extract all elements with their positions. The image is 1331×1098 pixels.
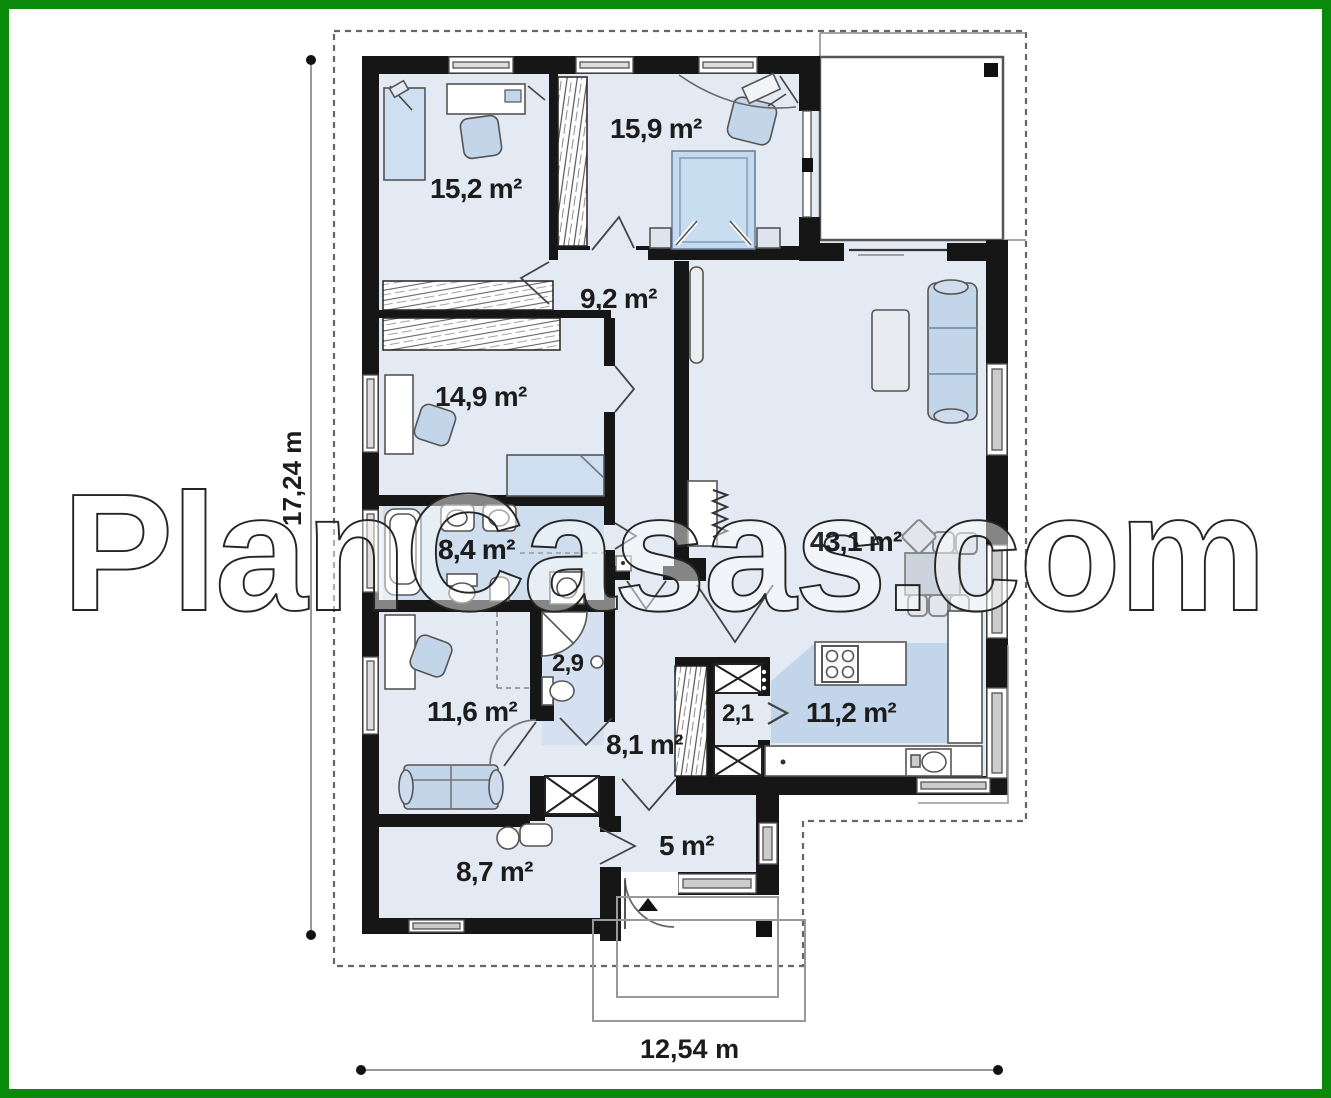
svg-text:8,4 m²: 8,4 m²: [438, 534, 515, 565]
svg-text:11,6 m²: 11,6 m²: [427, 696, 517, 727]
svg-text:2,1: 2,1: [722, 700, 754, 727]
svg-text:9,2 m²: 9,2 m²: [580, 283, 657, 314]
svg-text:14,9 m²: 14,9 m²: [435, 381, 527, 412]
svg-text:15,9 m²: 15,9 m²: [610, 113, 702, 144]
svg-text:15,2 m²: 15,2 m²: [430, 173, 522, 204]
svg-text:8,7 m²: 8,7 m²: [456, 856, 533, 887]
svg-text:2,9: 2,9: [552, 650, 584, 677]
svg-text:8,1 m²: 8,1 m²: [606, 729, 683, 760]
svg-text:11,2 m²: 11,2 m²: [806, 697, 896, 728]
svg-text:PlanCasas.com: PlanCasas.com: [62, 460, 1267, 646]
svg-text:12,54 m: 12,54 m: [640, 1034, 739, 1064]
svg-text:5 m²: 5 m²: [659, 830, 714, 861]
svg-text:43,1 m²: 43,1 m²: [810, 526, 902, 557]
